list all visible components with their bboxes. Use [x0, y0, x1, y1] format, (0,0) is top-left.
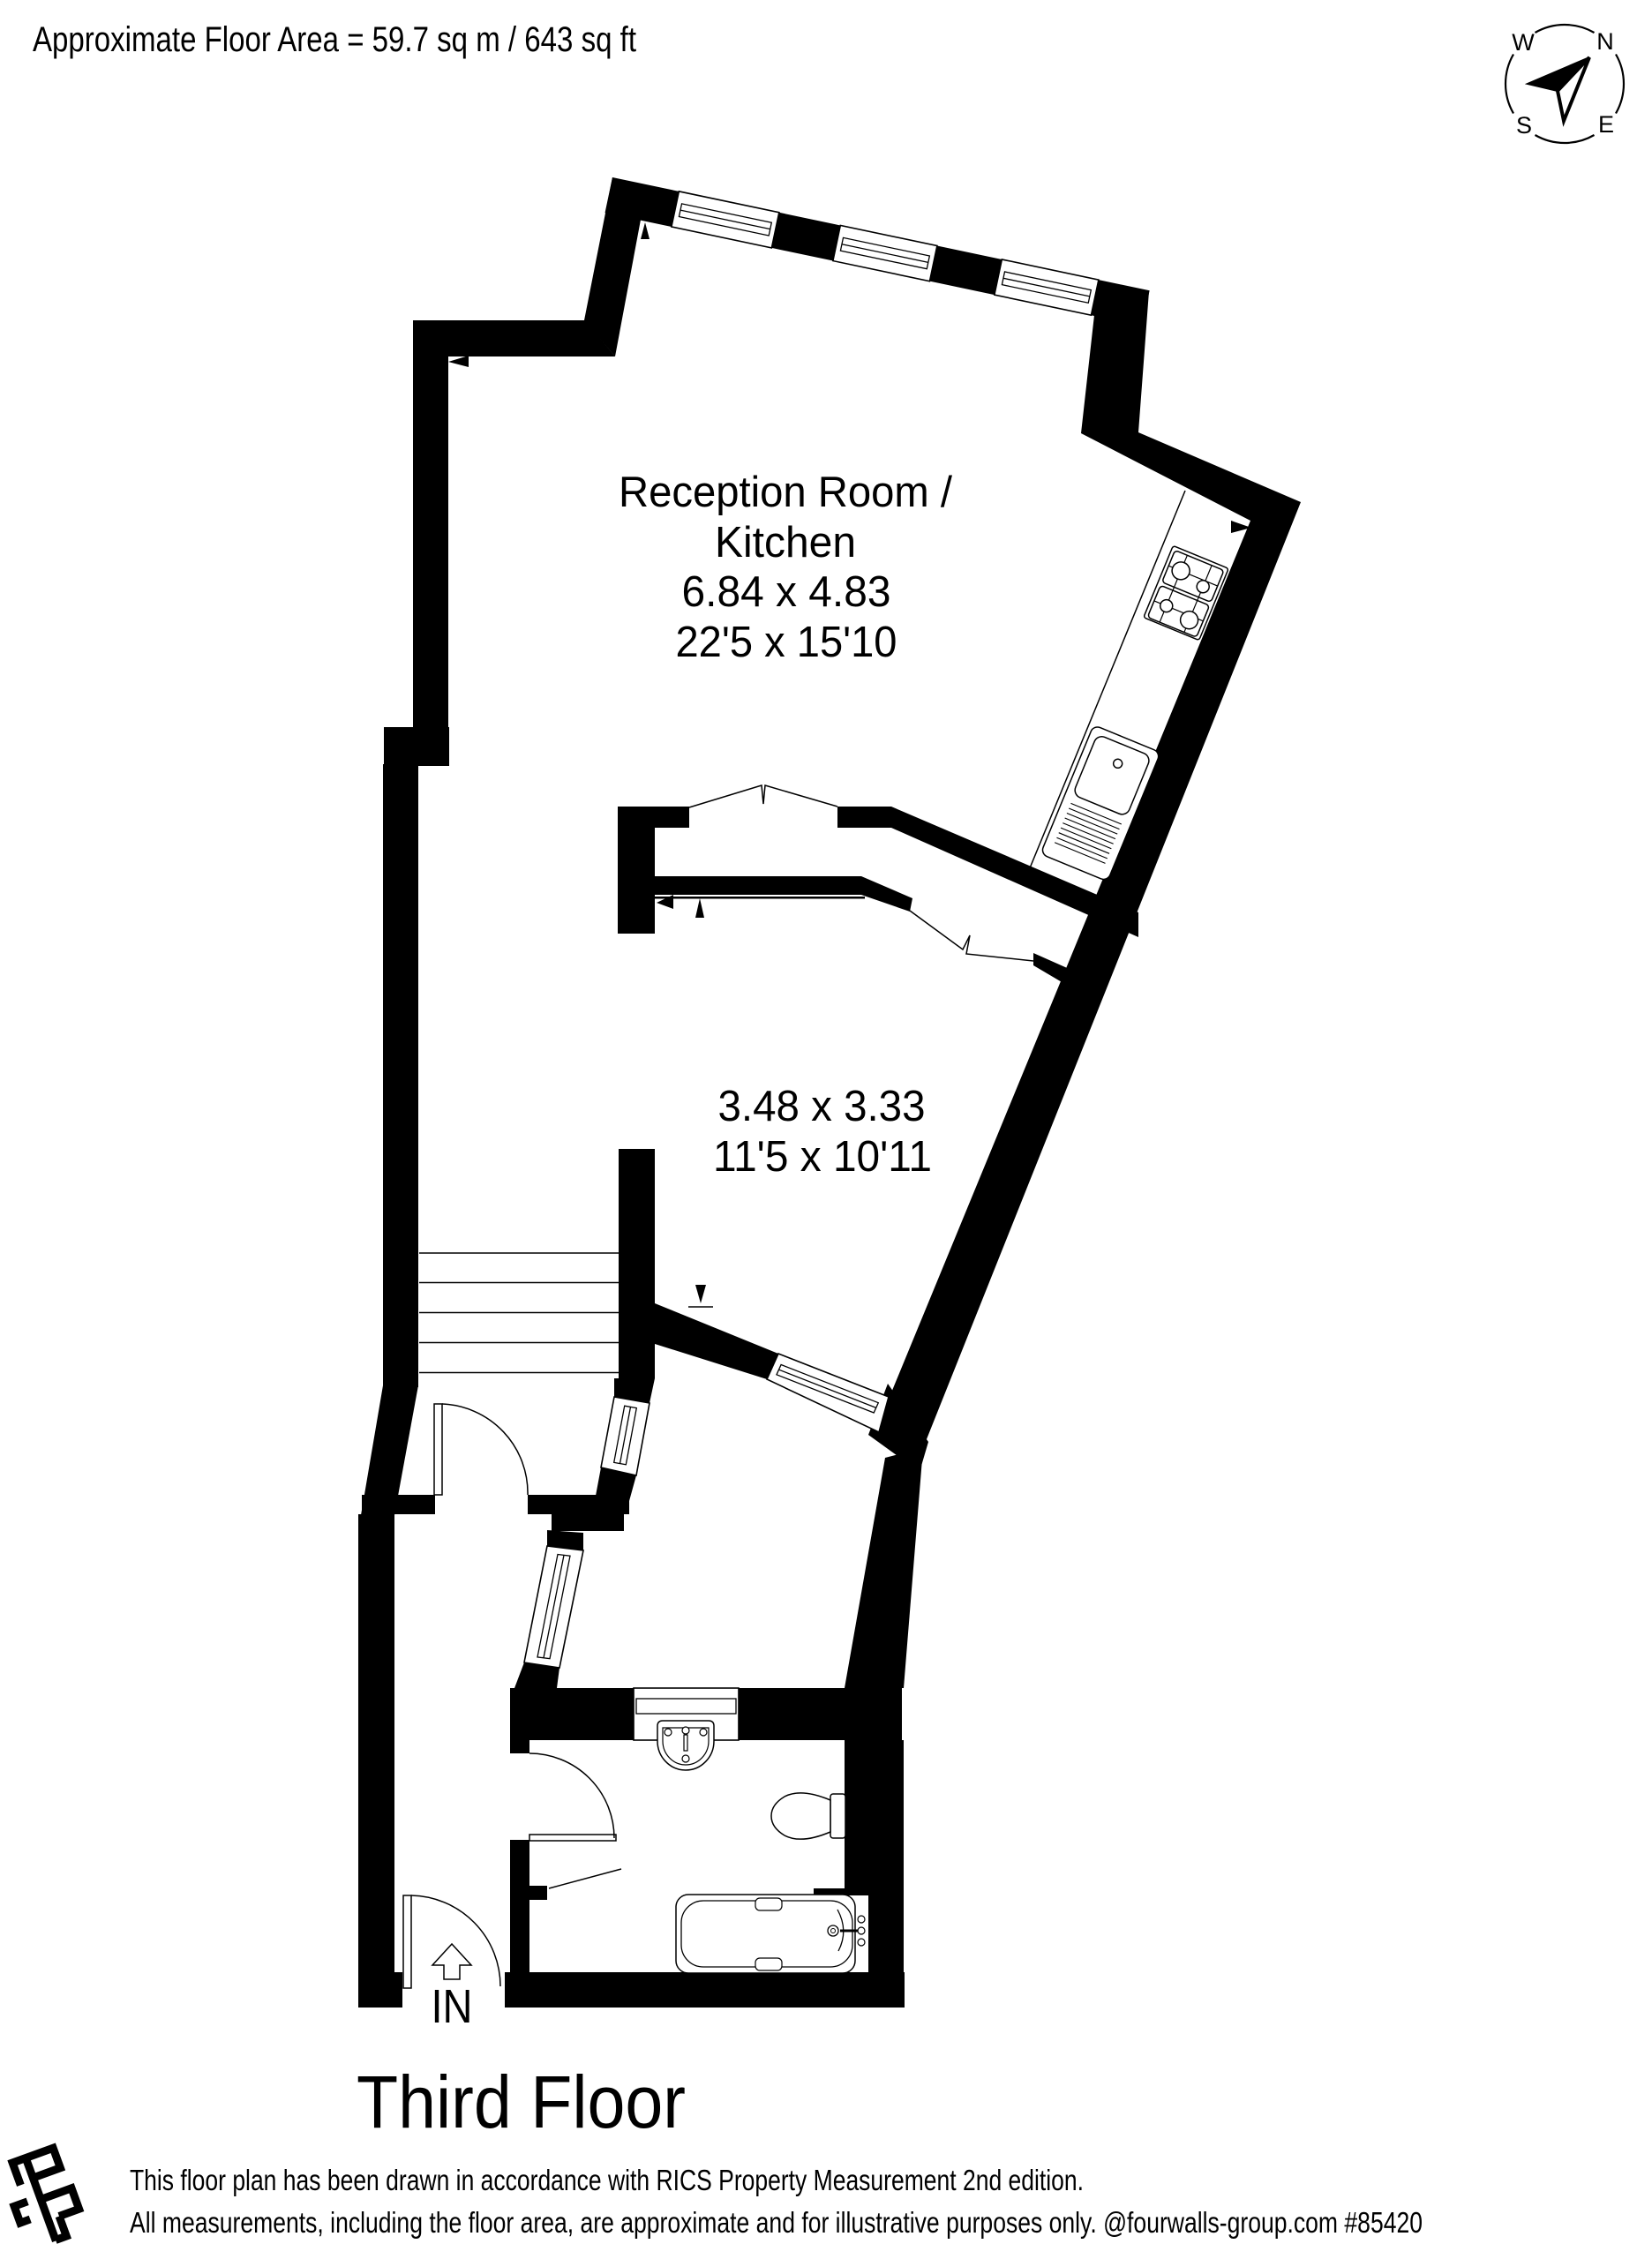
- svg-text:Reception Room /: Reception Room /: [619, 469, 952, 516]
- svg-text:N: N: [1596, 28, 1614, 55]
- svg-text:22'5 x 15'10: 22'5 x 15'10: [676, 619, 897, 666]
- svg-text:11'5 x 10'11: 11'5 x 10'11: [713, 1133, 932, 1181]
- svg-text:All measurements, including th: All measurements, including the floor ar…: [130, 2206, 1423, 2239]
- svg-text:S: S: [1516, 112, 1532, 139]
- svg-text:IN: IN: [432, 1980, 473, 2033]
- svg-text:Third Floor: Third Floor: [357, 2060, 686, 2143]
- svg-text:3.48 x 3.33: 3.48 x 3.33: [718, 1083, 926, 1130]
- svg-text:Kitchen: Kitchen: [715, 519, 856, 567]
- svg-text:6.84 x 4.83: 6.84 x 4.83: [682, 568, 891, 616]
- svg-text:W: W: [1512, 29, 1535, 56]
- svg-text:This floor plan has been drawn: This floor plan has been drawn in accord…: [130, 2164, 1084, 2196]
- svg-text:Approximate Floor Area = 59.7: Approximate Floor Area = 59.7 sq m / 643…: [33, 20, 636, 59]
- svg-text:E: E: [1598, 111, 1614, 138]
